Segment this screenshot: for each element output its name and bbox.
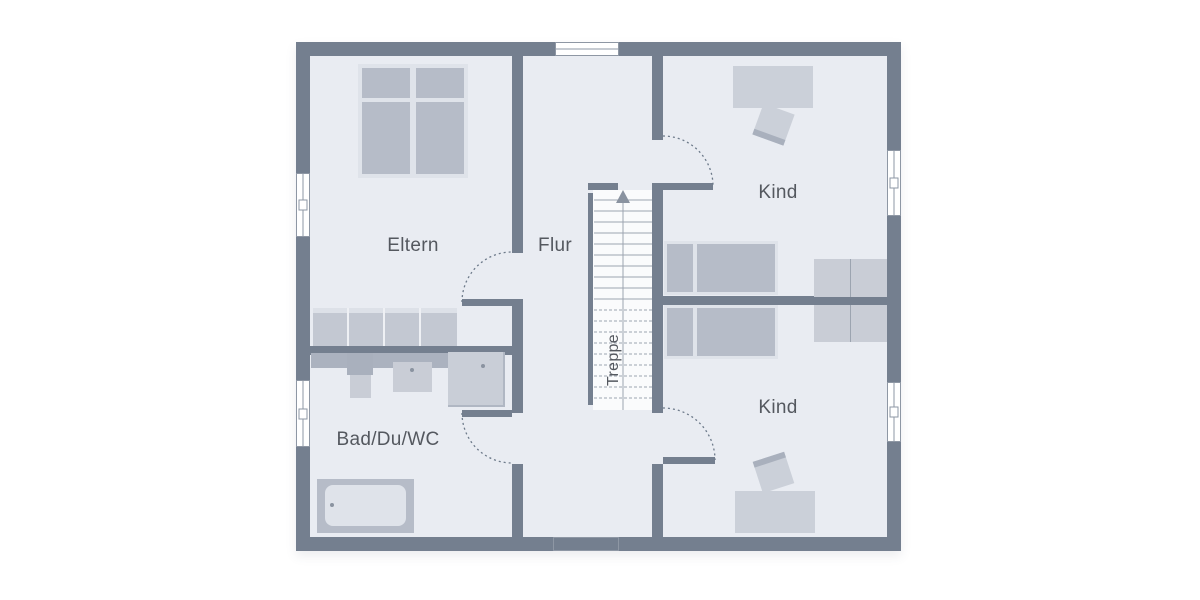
double-bed-icon	[358, 64, 468, 178]
window-left-eltern-icon	[296, 173, 310, 237]
dresser-kind-top-icon	[814, 259, 887, 297]
door-leaf-bad	[462, 410, 512, 417]
bed-mattress-left	[362, 102, 410, 174]
bed-pillow-left	[362, 68, 410, 98]
wardrobe-top-strip	[313, 308, 457, 313]
wall-bad-flur-upper	[512, 355, 523, 413]
door-leaf-kind-top	[663, 183, 713, 190]
bathtub-icon	[317, 479, 414, 533]
door-leaf-eltern	[462, 299, 512, 306]
window-left-bad-icon	[296, 380, 310, 447]
bed-mattress-right	[416, 102, 464, 174]
window-right-kind-bottom-icon	[887, 382, 901, 442]
room-label-eltern: Eltern	[387, 235, 438, 257]
dresser-kind-bottom-icon	[814, 305, 887, 342]
window-bottom-icon	[553, 537, 619, 551]
room-label-flur: Flur	[538, 235, 572, 257]
bed-mattress	[697, 244, 775, 292]
shower-icon	[448, 352, 505, 407]
desk-kind-top-icon	[733, 66, 813, 108]
bed-pillow	[667, 244, 693, 292]
floorplan: Eltern Flur Kind Kind Bad/Du/WC Treppe	[296, 42, 901, 551]
wardrobe-divider	[347, 308, 349, 346]
window-top-icon	[555, 42, 619, 56]
wall-eltern-flur-upper	[512, 56, 523, 253]
wall-flur-kind-bottom	[652, 464, 663, 537]
wall-flur-kind-top	[652, 56, 663, 140]
wall-stairwell-top-stub	[588, 183, 618, 190]
bed-pillow	[667, 308, 693, 356]
window-right-kind-top-icon	[887, 150, 901, 216]
wardrobe-icon	[313, 308, 457, 346]
floorplan-canvas: Eltern Flur Kind Kind Bad/Du/WC Treppe	[0, 0, 1200, 600]
bathtub-basin	[325, 485, 406, 526]
stairwell-left-rail	[588, 193, 593, 405]
bed-kind-top-icon	[664, 241, 778, 295]
toilet-cistern-icon	[347, 353, 373, 375]
room-label-kind-bottom: Kind	[758, 397, 797, 419]
bed-pillow-right	[416, 68, 464, 98]
wardrobe-divider	[383, 308, 385, 346]
exterior-wall-left	[296, 42, 310, 551]
room-label-kind-top: Kind	[758, 182, 797, 204]
bathtub-faucet-dot	[330, 503, 334, 507]
door-leaf-kind-bottom	[663, 457, 715, 464]
room-label-treppe: Treppe	[605, 334, 623, 386]
toilet-bowl-icon	[350, 375, 371, 398]
wall-kind-divider	[652, 296, 887, 305]
washbasin-icon	[393, 362, 432, 392]
desk-kind-bottom-icon	[735, 491, 815, 533]
bed-mattress	[697, 308, 775, 356]
wall-bad-flur-lower	[512, 464, 523, 537]
faucet-dot	[410, 368, 414, 372]
room-label-bad: Bad/Du/WC	[336, 429, 439, 451]
exterior-wall-right	[887, 42, 901, 551]
shower-head-dot	[481, 364, 485, 368]
bed-kind-bottom-icon	[664, 305, 778, 359]
wall-eltern-flur-lower	[512, 299, 523, 348]
wardrobe-divider	[419, 308, 421, 346]
